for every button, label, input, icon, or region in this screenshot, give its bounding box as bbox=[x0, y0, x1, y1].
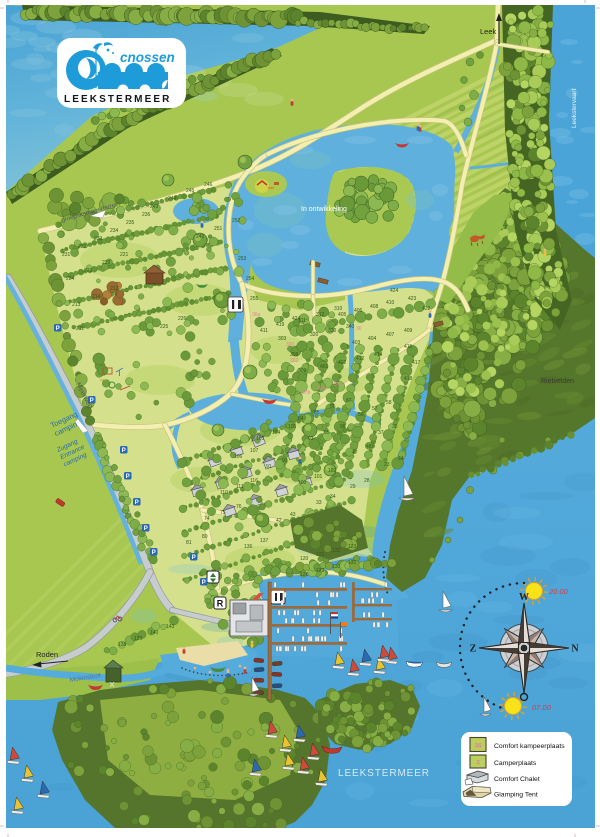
svg-text:96: 96 bbox=[340, 424, 346, 430]
svg-text:N: N bbox=[571, 644, 579, 655]
svg-text:423: 423 bbox=[408, 296, 417, 302]
svg-text:47: 47 bbox=[352, 450, 358, 456]
svg-text:38: 38 bbox=[392, 424, 398, 430]
svg-text:91: 91 bbox=[266, 464, 272, 470]
svg-text:P: P bbox=[152, 550, 156, 556]
svg-text:255: 255 bbox=[250, 296, 259, 302]
svg-text:415: 415 bbox=[404, 344, 413, 350]
svg-text:300: 300 bbox=[286, 342, 295, 348]
svg-text:408: 408 bbox=[370, 304, 379, 310]
svg-text:37b: 37b bbox=[302, 390, 311, 396]
svg-text:246: 246 bbox=[204, 182, 213, 188]
svg-text:LEEKSTERMEER: LEEKSTERMEER bbox=[338, 768, 430, 779]
svg-text:131: 131 bbox=[348, 560, 357, 566]
svg-text:LEEKSTERMEER: LEEKSTERMEER bbox=[64, 94, 171, 105]
svg-text:76: 76 bbox=[236, 504, 242, 510]
svg-text:424: 424 bbox=[390, 288, 399, 294]
svg-text:36: 36 bbox=[356, 326, 362, 332]
svg-text:106: 106 bbox=[234, 454, 243, 460]
svg-text:Z: Z bbox=[470, 644, 477, 655]
svg-text:401: 401 bbox=[320, 364, 329, 370]
svg-text:225: 225 bbox=[160, 324, 169, 330]
svg-text:80: 80 bbox=[202, 534, 208, 540]
svg-text:92: 92 bbox=[282, 458, 288, 464]
svg-text:57c: 57c bbox=[334, 382, 343, 388]
svg-text:Comfort Chalet: Comfort Chalet bbox=[494, 776, 540, 783]
svg-text:87: 87 bbox=[346, 398, 352, 404]
svg-text:231: 231 bbox=[62, 252, 71, 258]
svg-text:414: 414 bbox=[374, 352, 383, 358]
svg-text:29: 29 bbox=[350, 484, 356, 490]
svg-text:404: 404 bbox=[368, 336, 377, 342]
svg-text:107: 107 bbox=[250, 448, 259, 454]
svg-text:405: 405 bbox=[338, 312, 347, 318]
svg-text:57: 57 bbox=[372, 406, 378, 412]
svg-text:84: 84 bbox=[298, 416, 304, 422]
svg-text:252: 252 bbox=[232, 218, 241, 224]
svg-text:232: 232 bbox=[78, 244, 87, 250]
svg-text:W: W bbox=[519, 592, 529, 603]
svg-text:43: 43 bbox=[290, 512, 296, 518]
svg-text:P: P bbox=[122, 448, 126, 454]
svg-text:128: 128 bbox=[300, 572, 309, 578]
svg-text:81: 81 bbox=[186, 540, 192, 546]
svg-text:Camperplaats: Camperplaats bbox=[494, 760, 537, 767]
svg-text:244: 244 bbox=[168, 196, 177, 202]
svg-text:409: 409 bbox=[404, 328, 413, 334]
svg-text:214: 214 bbox=[92, 294, 101, 300]
svg-text:Comfort kampeerplaats: Comfort kampeerplaats bbox=[494, 743, 565, 750]
svg-text:28: 28 bbox=[364, 478, 370, 484]
svg-text:P: P bbox=[56, 326, 60, 332]
svg-text:411: 411 bbox=[260, 328, 268, 334]
svg-text:34: 34 bbox=[330, 494, 336, 500]
svg-text:245: 245 bbox=[186, 188, 195, 194]
svg-text:93: 93 bbox=[308, 436, 314, 442]
svg-text:424: 424 bbox=[292, 316, 301, 322]
svg-text:3: 3 bbox=[476, 760, 480, 767]
svg-text:236: 236 bbox=[142, 212, 151, 218]
svg-text:143: 143 bbox=[166, 624, 175, 630]
svg-text:221: 221 bbox=[120, 252, 129, 258]
svg-text:223: 223 bbox=[84, 268, 93, 274]
svg-text:419: 419 bbox=[276, 322, 285, 328]
svg-text:111: 111 bbox=[236, 484, 244, 490]
svg-text:95: 95 bbox=[324, 430, 330, 436]
svg-text:58: 58 bbox=[386, 400, 392, 406]
svg-text:243: 243 bbox=[150, 204, 159, 210]
svg-text:417: 417 bbox=[412, 360, 421, 366]
svg-text:213: 213 bbox=[72, 302, 81, 308]
svg-text:P: P bbox=[144, 526, 148, 532]
svg-text:P: P bbox=[126, 474, 130, 480]
svg-text:136: 136 bbox=[244, 544, 253, 550]
svg-text:101: 101 bbox=[314, 474, 323, 480]
svg-text:312: 312 bbox=[316, 312, 325, 318]
svg-text:Glamping Tent: Glamping Tent bbox=[494, 792, 538, 799]
svg-text:121: 121 bbox=[316, 552, 325, 558]
svg-text:123: 123 bbox=[348, 544, 357, 550]
svg-text:75: 75 bbox=[220, 510, 226, 516]
svg-text:85: 85 bbox=[314, 410, 320, 416]
svg-text:407: 407 bbox=[386, 332, 395, 338]
svg-text:222: 222 bbox=[102, 260, 111, 266]
svg-text:20.00: 20.00 bbox=[548, 587, 569, 596]
svg-text:P: P bbox=[202, 580, 206, 586]
svg-text:235: 235 bbox=[126, 220, 135, 226]
svg-text:406: 406 bbox=[354, 308, 363, 314]
svg-text:254: 254 bbox=[246, 276, 255, 282]
svg-text:Rietvelden: Rietvelden bbox=[541, 378, 574, 385]
svg-text:138: 138 bbox=[118, 642, 127, 648]
svg-text:116: 116 bbox=[250, 478, 258, 484]
svg-text:33: 33 bbox=[316, 500, 322, 506]
svg-text:139: 139 bbox=[134, 636, 143, 642]
svg-text:104: 104 bbox=[272, 430, 281, 436]
svg-text:302: 302 bbox=[290, 358, 299, 364]
svg-text:410: 410 bbox=[386, 300, 395, 306]
svg-text:cnossen: cnossen bbox=[120, 50, 175, 65]
svg-text:224: 224 bbox=[66, 276, 75, 282]
svg-text:233: 233 bbox=[94, 236, 103, 242]
svg-text:140: 140 bbox=[150, 630, 159, 636]
svg-text:P: P bbox=[192, 555, 196, 561]
svg-text:42: 42 bbox=[276, 518, 282, 524]
svg-text:23: 23 bbox=[384, 462, 390, 468]
svg-text:37: 37 bbox=[378, 430, 384, 436]
svg-text:422: 422 bbox=[422, 306, 431, 312]
svg-text:402: 402 bbox=[338, 360, 347, 366]
svg-text:226: 226 bbox=[178, 316, 187, 322]
svg-text:57a: 57a bbox=[318, 386, 327, 392]
svg-text:In ontwikkeling: In ontwikkeling bbox=[301, 206, 347, 213]
svg-text:R: R bbox=[217, 599, 224, 609]
svg-text:Roden: Roden bbox=[36, 650, 58, 659]
svg-text:86: 86 bbox=[330, 404, 336, 410]
svg-text:129: 129 bbox=[316, 568, 325, 574]
svg-text:241: 241 bbox=[196, 234, 205, 240]
svg-text:120: 120 bbox=[300, 556, 309, 562]
svg-text:137: 137 bbox=[260, 538, 269, 544]
svg-text:36a: 36a bbox=[252, 312, 261, 318]
svg-text:212: 212 bbox=[110, 286, 119, 292]
svg-text:74: 74 bbox=[204, 516, 210, 522]
svg-text:56: 56 bbox=[358, 412, 364, 418]
svg-text:24: 24 bbox=[398, 456, 404, 462]
svg-text:412: 412 bbox=[356, 356, 365, 362]
svg-text:122: 122 bbox=[332, 548, 341, 554]
svg-text:234: 234 bbox=[110, 228, 119, 234]
svg-text:110: 110 bbox=[220, 490, 228, 496]
svg-text:403: 403 bbox=[352, 340, 361, 346]
svg-text:251: 251 bbox=[214, 226, 223, 232]
svg-text:102: 102 bbox=[328, 468, 337, 474]
svg-text:105: 105 bbox=[288, 424, 297, 430]
svg-text:Leek: Leek bbox=[480, 27, 497, 36]
svg-text:309: 309 bbox=[298, 368, 307, 374]
svg-text:211: 211 bbox=[76, 326, 84, 332]
svg-text:Leekstervaart: Leekstervaart bbox=[571, 88, 578, 128]
svg-text:330: 330 bbox=[328, 328, 337, 334]
svg-text:253: 253 bbox=[238, 256, 247, 262]
svg-text:103: 103 bbox=[256, 436, 265, 442]
svg-text:100: 100 bbox=[298, 480, 307, 486]
svg-text:130: 130 bbox=[332, 564, 341, 570]
svg-text:320: 320 bbox=[310, 332, 319, 338]
svg-text:418: 418 bbox=[404, 376, 413, 382]
svg-text:340: 340 bbox=[346, 324, 355, 330]
svg-text:07.00: 07.00 bbox=[532, 703, 552, 712]
svg-text:P: P bbox=[135, 500, 139, 506]
svg-text:36: 36 bbox=[474, 743, 482, 750]
svg-text:48: 48 bbox=[366, 444, 372, 450]
